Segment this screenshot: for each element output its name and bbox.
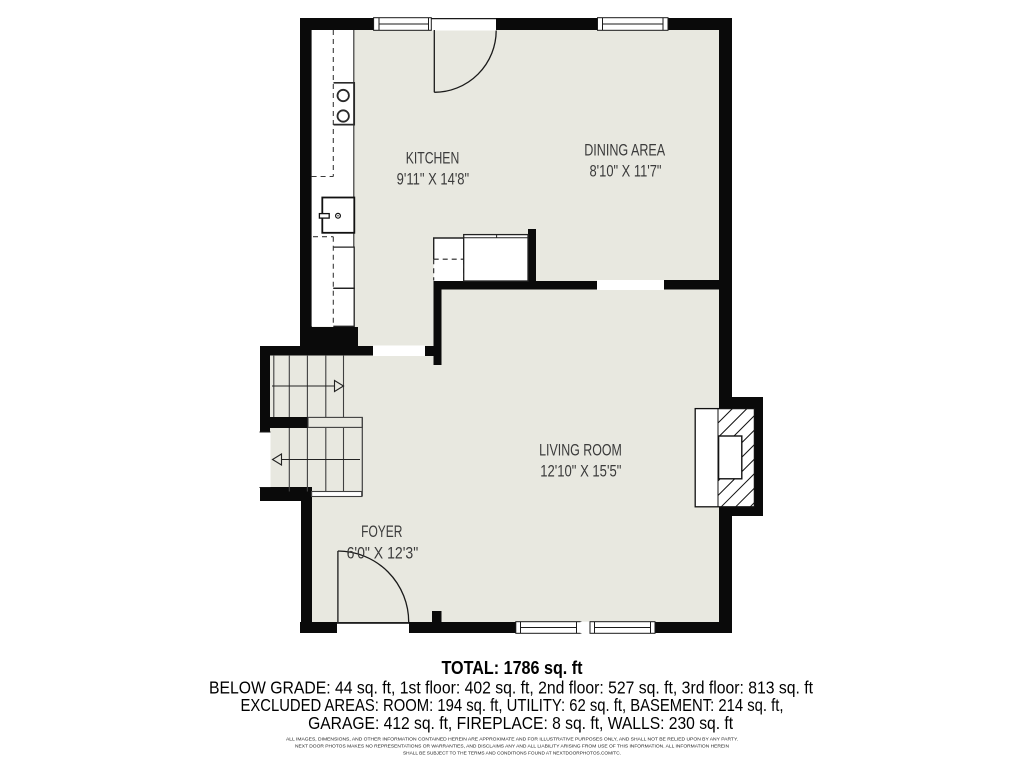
svg-text:9'11" X 14'8": 9'11" X 14'8" [397,170,470,188]
svg-text:KITCHEN: KITCHEN [406,149,460,167]
svg-text:GARAGE: 412 sq. ft, FIREPLACE:: GARAGE: 412 sq. ft, FIREPLACE: 8 sq. ft,… [308,713,733,733]
svg-text:6'0" X 12'3": 6'0" X 12'3" [347,544,419,562]
svg-text:TOTAL: 1786 sq. ft: TOTAL: 1786 sq. ft [442,658,583,678]
svg-text:FOYER: FOYER [361,523,402,541]
svg-text:DINING AREA: DINING AREA [584,142,665,160]
svg-text:8'10" X 11'7": 8'10" X 11'7" [590,163,662,181]
svg-text:NEXT DOOR PHOTOS MAKES NO REPR: NEXT DOOR PHOTOS MAKES NO REPRESENTATION… [295,743,729,749]
svg-text:12'10" X 15'5": 12'10" X 15'5" [540,462,621,480]
svg-text:LIVING ROOM: LIVING ROOM [539,441,622,459]
svg-text:ALL IMAGES, DIMENSIONS, AND OT: ALL IMAGES, DIMENSIONS, AND OTHER INFORM… [286,736,738,742]
svg-text:SHALL BE SUBJECT TO THE TERMS: SHALL BE SUBJECT TO THE TERMS AND CONDIT… [403,750,621,756]
